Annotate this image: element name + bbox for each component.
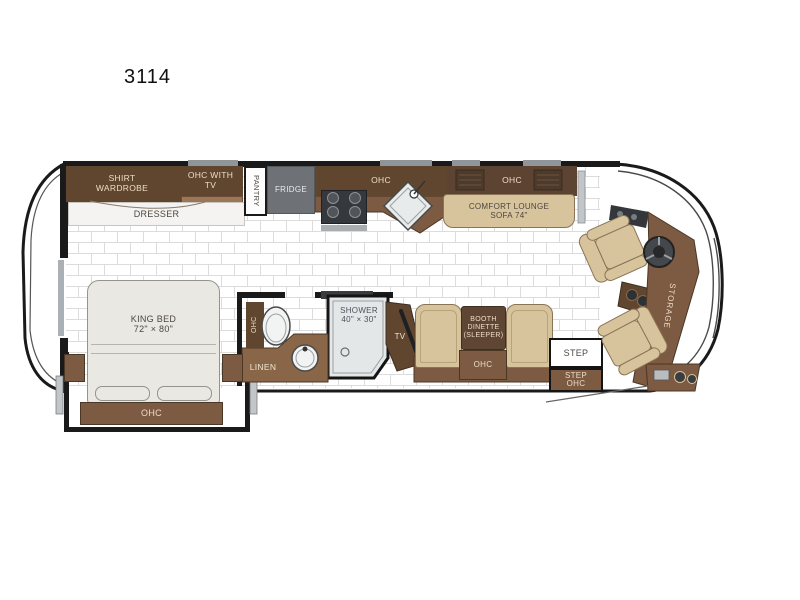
nightstand	[64, 354, 85, 382]
ohc-with-tv-label: OHC WITH TV	[178, 167, 243, 195]
plan-number: 3114	[124, 66, 171, 89]
shower-label: SHOWER 40" × 30"	[330, 300, 388, 330]
rear-window-bar	[58, 260, 64, 336]
entry-step-plate	[654, 370, 669, 380]
entry-step-light	[688, 375, 697, 384]
sofa-ohc-label: OHC	[492, 168, 532, 194]
king-bed-label: KING BED 72" × 80"	[87, 308, 220, 340]
nightstand	[222, 354, 243, 382]
bed-ohc-label: OHC	[80, 403, 223, 424]
bath-ohc-label: OHC	[248, 304, 262, 346]
bench-cushion-line	[420, 310, 457, 363]
fridge-label: FRIDGE	[267, 166, 315, 214]
entry-step-light	[675, 372, 686, 383]
pantry-label: PANTRY	[246, 168, 265, 214]
pillow	[95, 386, 150, 401]
dinette-ohc-label: OHC	[459, 351, 507, 379]
linen-label: LINEN	[243, 360, 283, 376]
dresser-label: DRESSER	[68, 203, 245, 225]
slide-rail	[578, 171, 585, 223]
dinette-bench	[415, 304, 462, 368]
bench-cushion-line	[511, 310, 548, 363]
speaker-icon	[627, 290, 638, 301]
bed-fold-line	[91, 344, 216, 354]
slide-rail	[56, 376, 63, 414]
tv-label: TV	[388, 330, 412, 344]
bed-slideout-wall	[64, 427, 250, 432]
shirt-wardrobe-label: SHIRT WARDROBE	[66, 168, 178, 200]
cooktop	[321, 190, 367, 224]
booth-dinette-label: BOOTH DINETTE (SLEEPER)	[461, 307, 506, 349]
comfort-lounge-label: COMFORT LOUNGE SOFA 74"	[443, 196, 575, 226]
dinette-bench	[506, 304, 553, 368]
floorplan-canvas: 3114 SHIRT WARDROBE OHC WITH TV DRESSER …	[0, 0, 800, 600]
pillow	[157, 386, 212, 401]
bath-wall	[237, 292, 285, 298]
step-ohc-label: STEP OHC	[549, 368, 603, 392]
